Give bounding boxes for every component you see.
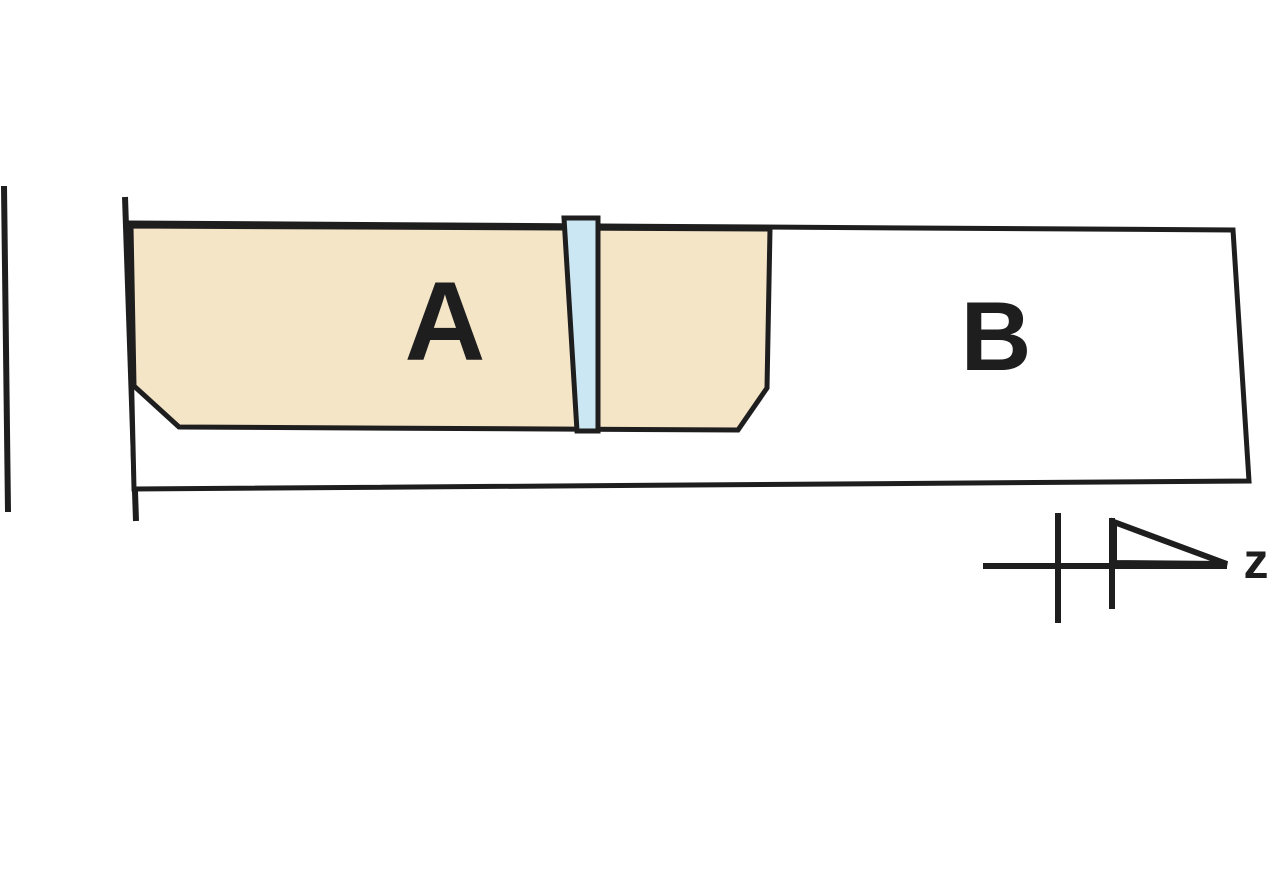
- diagram-root: A B z: [4, 186, 1269, 623]
- parcel-b-label: B: [961, 281, 1032, 391]
- north-arrow: z: [983, 513, 1269, 623]
- north-arrow-label: z: [1244, 533, 1269, 589]
- survey-line-far-left: [4, 186, 8, 512]
- site-plan-canvas: A B z: [0, 0, 1280, 875]
- parcel-a-label: A: [405, 259, 486, 384]
- north-arrow-head: [1114, 522, 1227, 564]
- site-plan-diagram: A B z: [0, 0, 1280, 875]
